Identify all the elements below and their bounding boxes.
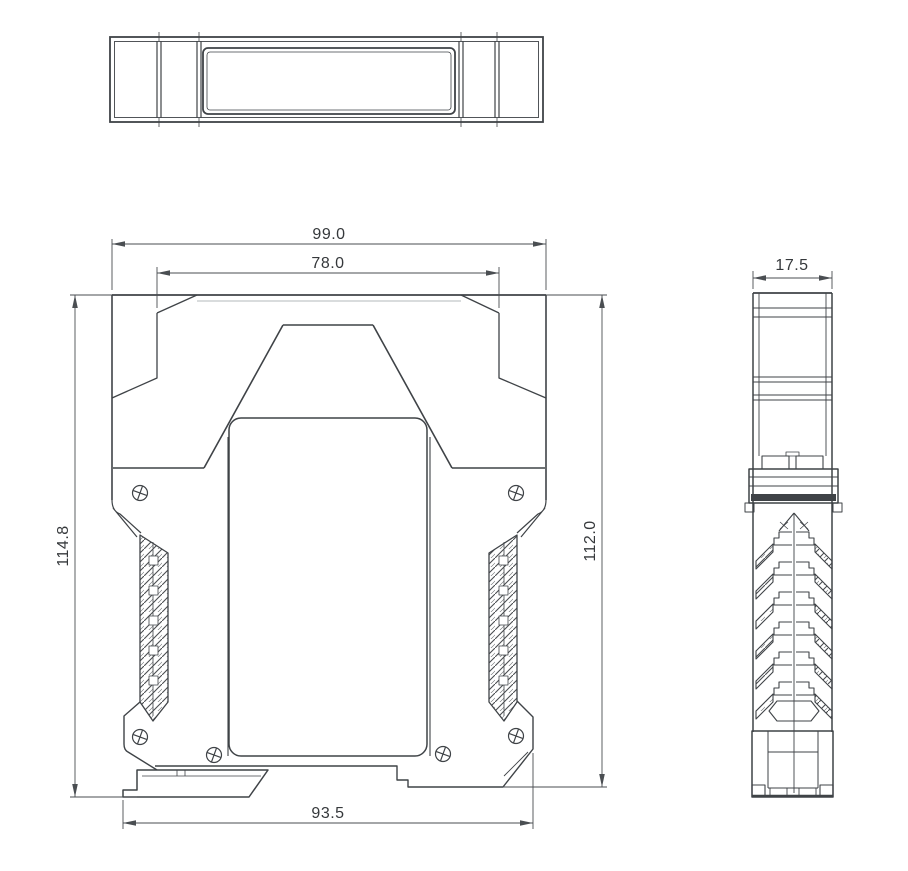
screw-bottom-center-left xyxy=(207,748,222,763)
arrowhead-icon xyxy=(486,270,499,276)
front-column-sides xyxy=(228,437,430,756)
dim-label-bottom-width: 93.5 xyxy=(311,805,344,822)
screw-bottom-left xyxy=(133,730,148,745)
arrowhead-icon xyxy=(520,820,533,826)
front-view xyxy=(112,295,546,797)
top-view-outline xyxy=(110,37,543,122)
dimensions: 99.0 78.0 114.8 112.0 xyxy=(55,226,832,829)
dim-label-overall-width: 99.0 xyxy=(312,226,345,243)
terminal-strip-left xyxy=(140,535,168,721)
arrowhead-icon xyxy=(599,774,605,787)
front-right-nose xyxy=(517,500,546,537)
top-view-label-recess xyxy=(203,48,455,114)
front-bottom-face xyxy=(155,701,533,787)
screw-bottom-right xyxy=(509,729,524,744)
din-slider xyxy=(123,770,268,797)
dim-cap-width: 78.0 xyxy=(157,255,499,308)
arrowhead-icon xyxy=(112,241,125,247)
front-bottom-right-inner-chamfer xyxy=(504,752,528,776)
arrowhead-icon xyxy=(72,784,78,797)
top-view-edge-ticks xyxy=(159,32,497,127)
dim-bottom-width: 93.5 xyxy=(123,753,533,829)
dim-body-height: 112.0 xyxy=(503,295,607,787)
front-left-nose xyxy=(112,500,141,537)
technical-drawing-page: 99.0 78.0 114.8 112.0 xyxy=(0,0,908,871)
dim-depth: 17.5 xyxy=(753,257,832,289)
front-bezel-trapezoid xyxy=(204,325,452,468)
front-cap-left-edge xyxy=(112,295,197,398)
front-label-window xyxy=(229,418,427,756)
arrowhead-icon xyxy=(819,275,832,281)
arrowhead-icon xyxy=(157,270,170,276)
side-rail-claw xyxy=(745,469,842,512)
arrowhead-icon xyxy=(599,295,605,308)
top-view xyxy=(110,32,543,127)
screw-top-left xyxy=(133,486,148,501)
arrowhead-icon xyxy=(72,295,78,308)
din-module-drawing: 99.0 78.0 114.8 112.0 xyxy=(0,0,908,871)
top-view-inner-border xyxy=(115,42,539,118)
dim-label-depth: 17.5 xyxy=(775,257,808,274)
side-bands xyxy=(753,308,832,400)
side-foot xyxy=(752,731,833,797)
arrowhead-icon xyxy=(753,275,766,281)
dim-label-overall-height: 114.8 xyxy=(55,525,72,566)
screws xyxy=(133,486,524,763)
dim-label-cap-width: 78.0 xyxy=(311,255,344,272)
side-tab-row xyxy=(762,452,823,469)
screw-top-right xyxy=(509,486,524,501)
dim-label-body-height: 112.0 xyxy=(582,520,599,561)
screw-bottom-center-right xyxy=(436,747,451,762)
top-view-label-recess-inner xyxy=(207,52,451,110)
terminal-strip-right xyxy=(489,535,517,721)
side-view xyxy=(745,293,842,797)
arrowhead-icon xyxy=(123,820,136,826)
side-outer-walls xyxy=(753,293,832,732)
front-cap-right-edge xyxy=(461,295,546,398)
side-terminal-stack xyxy=(756,513,832,793)
arrowhead-icon xyxy=(533,241,546,247)
